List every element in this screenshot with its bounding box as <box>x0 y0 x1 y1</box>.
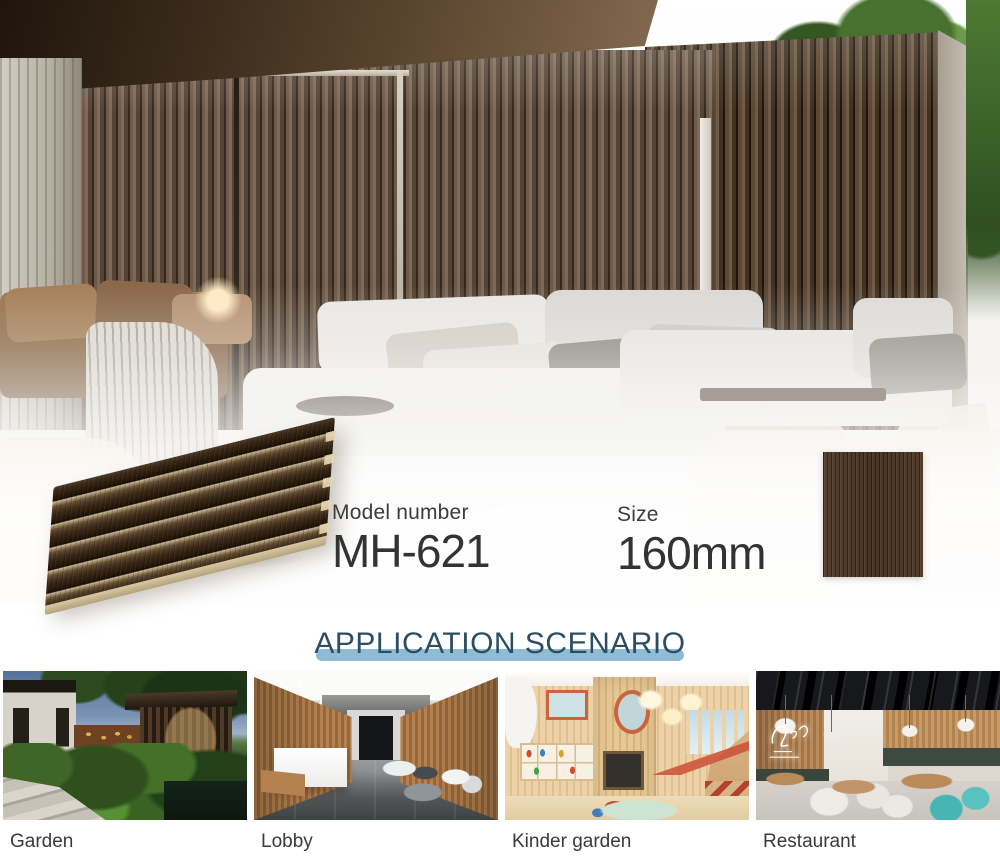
scenario-photo-garden <box>3 671 247 820</box>
neon-script-sign <box>763 710 826 773</box>
scenario-photo-kinder-garden <box>505 671 749 820</box>
scenario-photo-lobby <box>254 671 498 820</box>
model-number-label: Model number <box>332 502 490 523</box>
scenario-card-garden: Garden <box>3 671 247 853</box>
garden-pond <box>164 781 247 820</box>
scenario-caption-garden: Garden <box>3 820 247 853</box>
scenario-caption-lobby: Lobby <box>254 820 498 853</box>
scenario-card-lobby: Lobby <box>254 671 498 853</box>
kinder-toy-shelves <box>520 743 596 782</box>
size-value: 160mm <box>617 530 765 576</box>
wood-texture-swatch <box>823 452 923 577</box>
scenario-card-kinder-garden: Kinder garden <box>505 671 749 853</box>
scenario-photo-restaurant <box>756 671 1000 820</box>
model-number-block: Model number MH-621 <box>332 502 490 574</box>
scenario-caption-restaurant: Restaurant <box>756 820 1000 853</box>
kinder-slide <box>505 677 537 749</box>
scenario-card-restaurant: Restaurant <box>756 671 1000 853</box>
size-block: Size 160mm <box>617 504 765 576</box>
section-title: APPLICATION SCENARIO <box>0 627 1000 661</box>
kinder-chalkboard <box>603 751 644 790</box>
lobby-pebble-seats <box>376 757 493 814</box>
size-label: Size <box>617 504 765 525</box>
kinder-wall-mirror <box>546 690 588 720</box>
scenario-caption-kinder-garden: Kinder garden <box>505 820 749 853</box>
scenario-grid: Garden Lobby <box>3 671 1000 853</box>
kinder-floor-toys <box>505 796 749 820</box>
model-number-value: MH-621 <box>332 528 490 574</box>
product-detail-page: Model number MH-621 Size 160mm APPLICATI… <box>0 0 1000 862</box>
